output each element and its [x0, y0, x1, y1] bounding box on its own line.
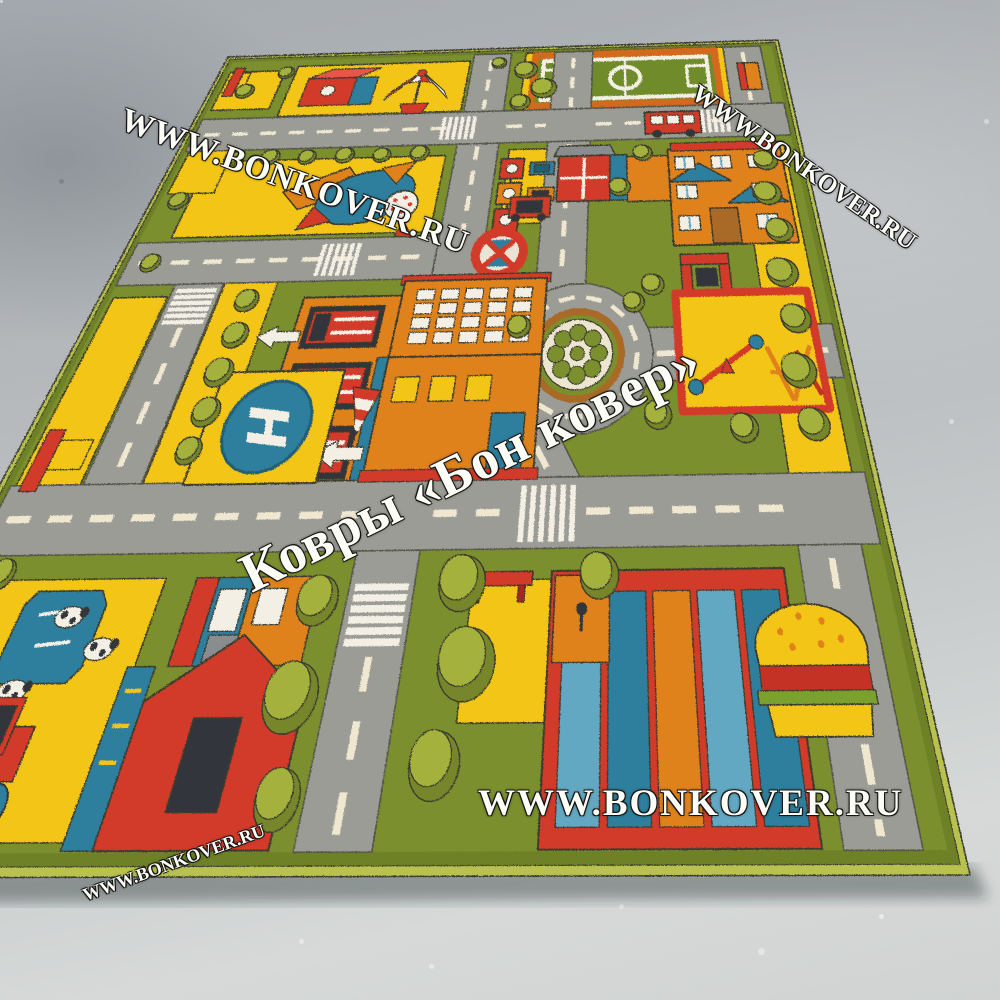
playground	[675, 291, 830, 412]
arch-gate	[680, 253, 732, 290]
photo-scene: H WWW.BONKOVER.RU WWW.BONKOVER.RU Ковры …	[0, 0, 1000, 1000]
watermark-bottom-center: WWW.BONKOVER.RU	[478, 782, 903, 825]
helipad-letter: H	[233, 401, 301, 454]
no-stopping-sign	[475, 232, 523, 275]
play-rug-photo: H	[0, 0, 1000, 1000]
bus	[644, 111, 701, 137]
